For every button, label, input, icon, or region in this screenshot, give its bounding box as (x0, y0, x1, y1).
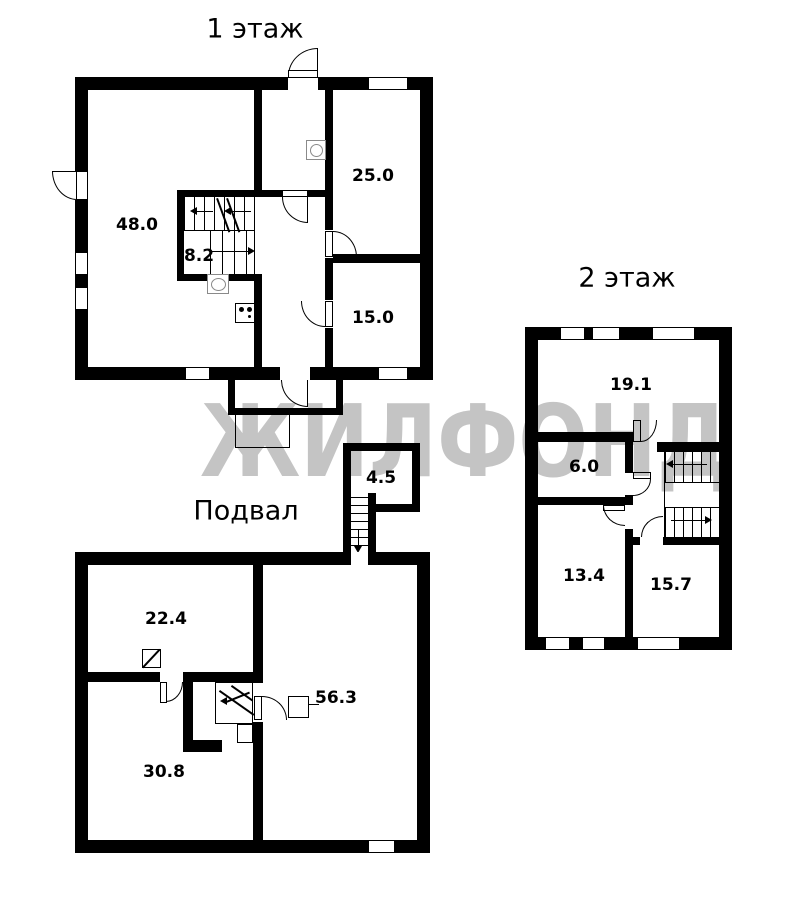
door-arc-icon (333, 231, 357, 257)
window-icon (368, 77, 408, 90)
wall-segment (177, 190, 262, 197)
window-icon (582, 637, 605, 650)
wall-segment (193, 740, 222, 752)
watermark: ЖИЛФОНД (200, 392, 730, 492)
window-icon (637, 637, 680, 650)
door-opening (288, 77, 318, 90)
room-area-label: 30.8 (143, 762, 185, 782)
stair-arrow-head (705, 516, 712, 524)
stair-arrow-head (190, 207, 197, 215)
wall-segment (633, 537, 640, 545)
stair-arrow-head (220, 697, 227, 705)
door-panel-icon (76, 171, 88, 200)
wall-segment (75, 552, 88, 853)
wall-segment (253, 565, 263, 683)
stair-edge-line (254, 197, 255, 274)
room-area-label: 13.4 (563, 566, 605, 586)
door-panel-icon (325, 301, 333, 327)
stair-arrow-head (224, 207, 231, 215)
stair-landing-line (184, 230, 255, 231)
sink-icon (207, 274, 229, 294)
stove-icon (235, 303, 255, 323)
door-opening (280, 367, 310, 380)
door-arc-icon (282, 197, 308, 223)
window-icon (652, 327, 695, 340)
wall-segment (183, 682, 193, 752)
radiator-icon (288, 696, 309, 718)
wall-segment (254, 90, 262, 190)
wall-segment (417, 552, 430, 853)
wall-segment (525, 327, 732, 340)
room-area-label: 48.0 (116, 215, 158, 235)
stair-opening (351, 552, 368, 565)
wall-segment (262, 190, 282, 197)
door-arc-icon (262, 696, 287, 720)
door-panel-icon (254, 696, 262, 720)
stair-arrow (671, 520, 705, 521)
door-arc-icon (301, 301, 325, 327)
window-icon (75, 287, 88, 310)
stair-arrow (197, 211, 213, 212)
window-icon (378, 367, 408, 380)
door-arc-icon (166, 682, 183, 702)
window-icon (545, 637, 570, 650)
wall-segment (325, 328, 333, 367)
stair-treads-down (351, 497, 368, 547)
wall-segment (183, 672, 253, 682)
window-icon (592, 327, 620, 340)
room-area-label: 25.0 (352, 166, 394, 186)
window-icon (368, 840, 395, 853)
door-panel-icon (282, 190, 308, 197)
stair-arrow-head (248, 247, 255, 255)
wall-segment (663, 537, 719, 545)
floor1-title: 1 этаж (206, 14, 303, 45)
door-panel-icon (325, 231, 333, 257)
wall-segment (75, 77, 88, 380)
basement-title: Подвал (193, 496, 298, 527)
wall-segment (625, 529, 633, 637)
window-icon (75, 252, 88, 275)
room-area-label: 56.3 (315, 688, 357, 708)
door-arc-icon (52, 171, 77, 200)
small-steps-icon (237, 724, 253, 743)
wall-segment (75, 552, 430, 565)
wall-segment (420, 77, 433, 380)
wall-segment (88, 672, 160, 682)
wall-segment (177, 190, 184, 281)
wall-segment (254, 274, 262, 367)
stair-arrow (231, 211, 251, 212)
vent-hatch-icon (142, 649, 161, 668)
door-panel-icon (288, 70, 318, 78)
floorplan-canvas: 1 этаж 2 этаж Подвал (0, 0, 808, 897)
room-area-label: 8.2 (184, 246, 214, 266)
room-area-label: 15.7 (650, 575, 692, 595)
window-icon (185, 367, 210, 380)
wall-segment (325, 90, 333, 230)
stair-arrow (210, 251, 248, 252)
floor2-title: 2 этаж (578, 263, 675, 294)
door-arc-icon (603, 505, 625, 526)
room-area-label: 22.4 (145, 609, 187, 629)
wall-segment (325, 258, 333, 300)
gas-meter-icon (306, 140, 326, 160)
vent-hatch-line (142, 649, 160, 668)
room-area-label: 15.0 (352, 308, 394, 328)
stair-arrow (358, 530, 359, 546)
door-arc-icon (641, 516, 663, 537)
window-icon (560, 327, 585, 340)
wall-segment (253, 722, 263, 840)
wall-segment (308, 190, 325, 197)
